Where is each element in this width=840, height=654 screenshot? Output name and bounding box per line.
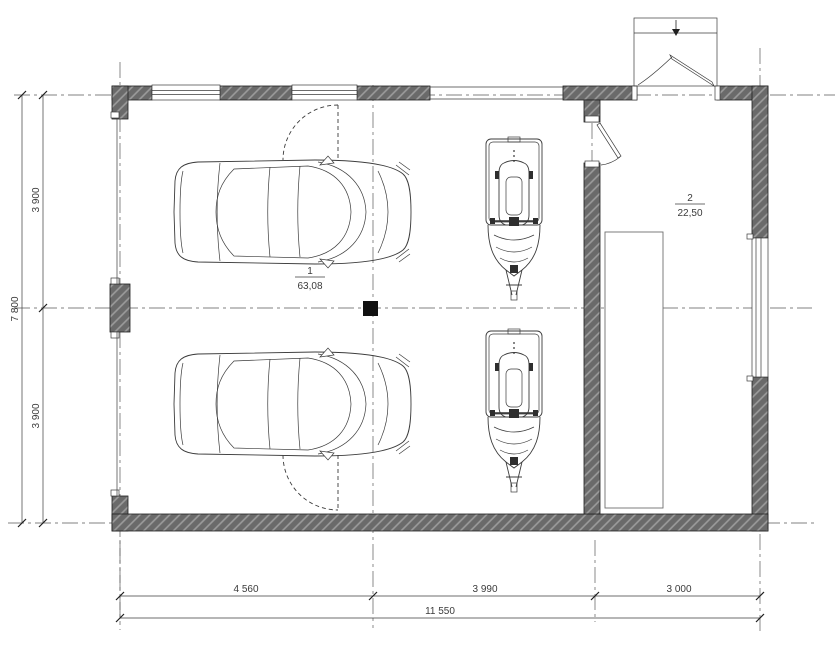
floor-plan-drawing: 1 63,08 2 22,50 4 560 3 990 3 000 11 550… [0,0,840,654]
dimension-lines-bottom: 4 560 3 990 3 000 11 550 [116,540,764,622]
room-label-2: 2 22,50 [675,193,705,219]
car-top-view-2 [174,348,411,460]
boat-gate-opening-top [430,87,563,99]
car-top-view-1 [174,156,411,268]
entrance-porch [634,18,717,86]
entrance-arrow-icon [672,29,680,36]
room-number: 2 [687,193,693,204]
entry-door [632,55,720,100]
room-area: 63,08 [297,281,322,292]
room-label-1: 1 63,08 [295,266,325,292]
storage-bench [605,232,663,508]
floor-plan-canvas: 1 63,08 2 22,50 4 560 3 990 3 000 11 550… [0,0,840,654]
interior-door [597,123,621,165]
dim-bottom-total: 11 550 [425,606,455,617]
dim-left-2: 3 900 [31,403,42,428]
structural-column [363,301,378,316]
exterior-walls [110,86,768,531]
dim-bottom-2: 3 990 [472,584,497,595]
right-wall-window [747,234,768,381]
room-number: 1 [307,266,313,277]
watercraft-trailer-1 [486,137,542,300]
room-area: 22,50 [677,208,702,219]
dim-left-total: 7 800 [10,296,21,321]
watercraft-trailer-2 [486,329,542,492]
dimension-lines-left: 3 900 3 900 7 800 [10,91,47,527]
interior-wall [584,100,600,514]
dim-left-1: 3 900 [31,187,42,212]
dim-bottom-1: 4 560 [233,584,258,595]
axis-centerlines [8,48,835,632]
dim-bottom-3: 3 000 [666,584,691,595]
